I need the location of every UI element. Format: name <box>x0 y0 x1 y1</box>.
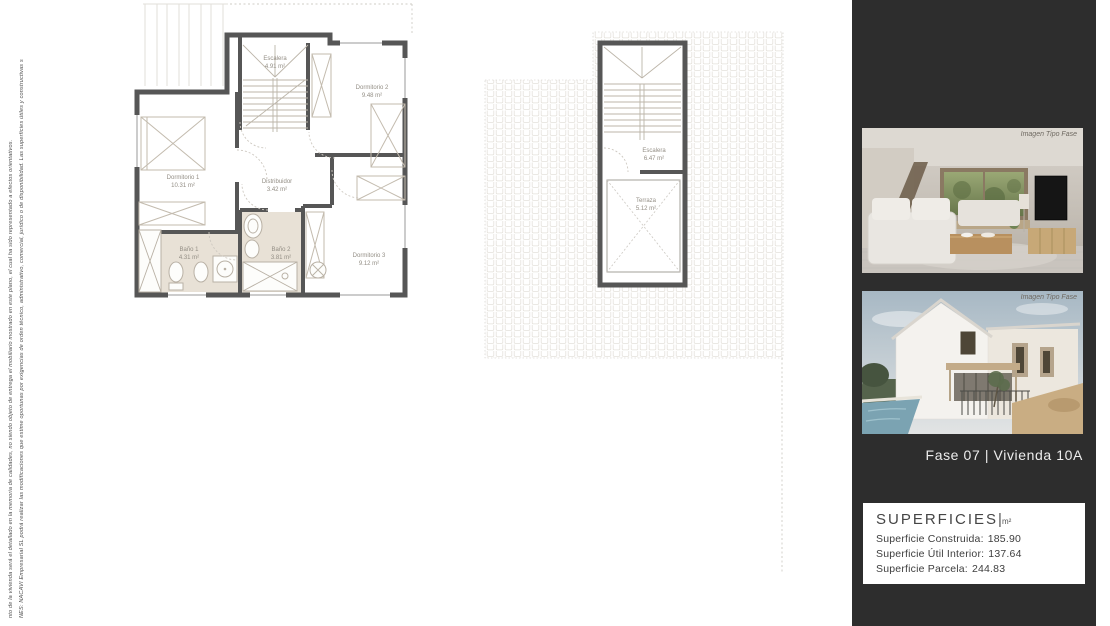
superficie-parcela-label: Superficie Parcela: <box>876 563 968 575</box>
bedroom-floor-plan: Escalera 4.91 m² Dormitorio 2 9.48 m² Do… <box>134 35 408 298</box>
superficie-construida-value: 185.90 <box>988 533 1021 545</box>
superficie-parcela-value: 244.83 <box>972 563 1005 575</box>
plan-sheet: nto de la vivienda será el detallado en … <box>0 0 1110 626</box>
room-label-dormitorio1: Dormitorio 1 <box>167 175 200 181</box>
roof-area-terraza: 5.12 m² <box>636 206 656 212</box>
room-area-escalera: 4.91 m² <box>265 64 285 70</box>
floor-plan-drawing: Escalera 4.91 m² Dormitorio 2 9.48 m² Do… <box>0 0 855 626</box>
living-room-render-image <box>862 128 1083 273</box>
roof-plan: Escalera 6.47 m² Terraza 5.12 m² <box>485 32 783 358</box>
superficies-unit: m² <box>1002 517 1011 526</box>
superficies-heading: SUPERFICIES|m² <box>876 511 1073 528</box>
superficies-heading-text: SUPERFICIES <box>876 511 998 528</box>
terraza-cross <box>607 180 680 272</box>
roof-tile-area <box>485 32 783 358</box>
superficie-construida-row: Superficie Construida:185.90 <box>876 532 1073 547</box>
house-exterior-render-image <box>862 291 1083 434</box>
room-label-dormitorio2: Dormitorio 2 <box>356 85 389 91</box>
superficie-construida-label: Superficie Construida: <box>876 533 984 545</box>
photo-living-room: Imagen Tipo Fase <box>862 128 1083 273</box>
photo-caption: Imagen Tipo Fase <box>1021 131 1077 138</box>
info-sidebar: Imagen Tipo Fase <box>852 0 1096 626</box>
phase-unit-title: Fase 07 | Vivienda 10A <box>926 447 1083 463</box>
plot-boundary-dashed-left <box>230 4 412 35</box>
room-label-escalera: Escalera <box>263 56 287 62</box>
photo-caption: Imagen Tipo Fase <box>1021 294 1077 301</box>
room-label-bano2: Baño 2 <box>271 247 291 253</box>
room-area-distribuidor: 3.42 m² <box>267 187 287 193</box>
superficie-util-label: Superficie Útil Interior: <box>876 548 984 560</box>
superficie-parcela-row: Superficie Parcela:244.83 <box>876 562 1073 577</box>
roof-area-escalera: 6.47 m² <box>644 156 664 162</box>
room-area-dormitorio1: 10.31 m² <box>171 183 195 189</box>
tower-staircase <box>604 47 681 140</box>
room-label-distribuidor: Distribuidor <box>262 179 292 185</box>
roof-label-escalera: Escalera <box>642 148 666 154</box>
pergola-hatch <box>143 4 228 86</box>
room-label-dormitorio3: Dormitorio 3 <box>353 253 386 259</box>
room-area-bano1: 4.31 m² <box>179 255 199 261</box>
photo-house-exterior: Imagen Tipo Fase <box>862 291 1083 434</box>
superficie-util-value: 137.64 <box>988 548 1021 560</box>
room-area-dormitorio2: 9.48 m² <box>362 93 382 99</box>
superficie-util-row: Superficie Útil Interior:137.64 <box>876 547 1073 562</box>
roof-label-terraza: Terraza <box>636 198 657 204</box>
room-area-bano2: 3.81 m² <box>271 255 291 261</box>
tower-door-arc <box>604 148 628 172</box>
room-label-bano1: Baño 1 <box>179 247 199 253</box>
superficies-panel: SUPERFICIES|m² Superficie Construida:185… <box>863 503 1085 584</box>
tower-walls <box>600 43 685 285</box>
room-area-dormitorio3: 9.12 m² <box>359 261 379 267</box>
